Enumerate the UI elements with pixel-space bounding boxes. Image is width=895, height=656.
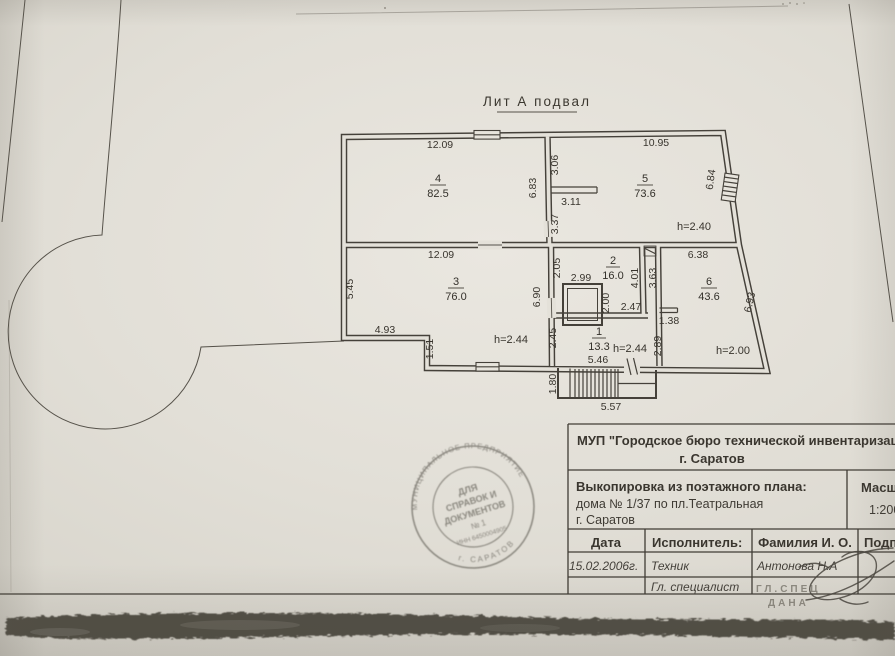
- dim-partition-stub: 3.11: [561, 196, 581, 208]
- room4-number: 4: [435, 173, 441, 185]
- dim-room4-top: 12.09: [427, 139, 453, 151]
- dim-stairs-width: 5.57: [601, 401, 622, 413]
- dim-room6-top: 6.38: [688, 249, 709, 261]
- document-canvas: Лит А подвал: [0, 0, 895, 656]
- height-room3: h=2.44: [494, 334, 528, 346]
- round-stamp: МУНИЦИПАЛЬНОЕ ПРЕДПРИЯТИЕ г. САРАТОВ ДЛЯ…: [395, 426, 549, 583]
- room3-number: 3: [453, 276, 459, 288]
- col-header-executor: Исполнитель:: [652, 535, 742, 550]
- height-room5: h=2.40: [677, 221, 711, 233]
- shaft-box-outer: [563, 284, 602, 325]
- partition-stub-room5: [551, 187, 597, 193]
- room1-area: 13.3: [588, 341, 609, 353]
- dim-room1-bottom: 5.46: [588, 354, 609, 366]
- dim-room1-right: 2.89: [652, 336, 664, 357]
- dim-room3-left: 5.45: [344, 279, 356, 300]
- dim-shaft-bottom: 2.47: [621, 301, 642, 313]
- room6-area: 43.6: [698, 291, 719, 303]
- col-header-name: Фамилия И. О.: [758, 535, 852, 550]
- org-name-line1: МУП "Городское бюро технической инвентар…: [577, 433, 895, 448]
- scanned-floorplan-document: Лит А подвал: [0, 0, 895, 656]
- room3-area: 76.0: [445, 291, 466, 303]
- dim-room1-left: 2.45: [547, 328, 559, 349]
- height-room1: h=2.44: [613, 343, 647, 355]
- plan-title: Лит А подвал: [483, 94, 591, 109]
- scale-value: 1:200: [869, 503, 895, 517]
- doc-type-line3: г. Саратов: [576, 513, 635, 527]
- dim-room6-wall: 3.63: [647, 268, 659, 289]
- org-name-line2: г. Саратов: [679, 451, 744, 466]
- doc-type-line2: дома № 1/37 по пл.Театральная: [576, 497, 763, 511]
- dim-shaft-right: 2.00: [600, 293, 612, 314]
- date-value: 15.02.2006г.: [569, 559, 638, 573]
- dim-wall45-upper: 3.06: [549, 155, 561, 176]
- room5-area: 73.6: [634, 188, 655, 200]
- dim-room2-right: 4.01: [629, 268, 641, 289]
- signature: [799, 548, 894, 604]
- dim-stairs-depth: 1.80: [547, 374, 559, 395]
- doc-type-line1: Выкопировка из поэтажного плана:: [576, 479, 807, 494]
- chief-stamp-line2: ДАНА: [768, 598, 809, 609]
- paper-specks: [384, 2, 805, 9]
- stub-room6: [660, 308, 678, 313]
- room6-number: 6: [706, 276, 712, 288]
- dim-room5-top: 10.95: [643, 137, 669, 149]
- col-header-date: Дата: [591, 535, 622, 550]
- dim-step-width: 4.93: [375, 324, 396, 336]
- dim-room3-top: 12.09: [428, 249, 454, 261]
- room5-number: 5: [642, 173, 648, 185]
- dim-shaft-top: 2.99: [571, 272, 592, 284]
- paper-edge-shadow-band: [6, 613, 894, 640]
- room2-number: 2: [610, 255, 616, 267]
- scale-label: Масштаб: [861, 480, 895, 495]
- executor-value: Техник: [651, 559, 690, 573]
- dim-center-wall: 6.90: [531, 287, 543, 308]
- dim-wall45-side: 6.83: [527, 178, 539, 199]
- window-right-wall-hatched: [721, 173, 739, 202]
- dim-step-height: 1.51: [424, 339, 436, 360]
- dim-room2-left: 2.05: [551, 258, 563, 279]
- height-room6: h=2.00: [716, 345, 750, 357]
- room4-area: 82.5: [427, 188, 448, 200]
- dim-wall45-lower: 3.37: [549, 214, 561, 235]
- room1-number: 1: [596, 326, 602, 338]
- room2-area: 16.0: [602, 270, 623, 282]
- stamp-center-line4: № 1: [470, 518, 488, 531]
- dim-room5-right: 6.84: [704, 168, 719, 190]
- chief-specialist-role: Гл. специалист: [651, 580, 739, 594]
- dim-stub6: 1.38: [659, 315, 680, 327]
